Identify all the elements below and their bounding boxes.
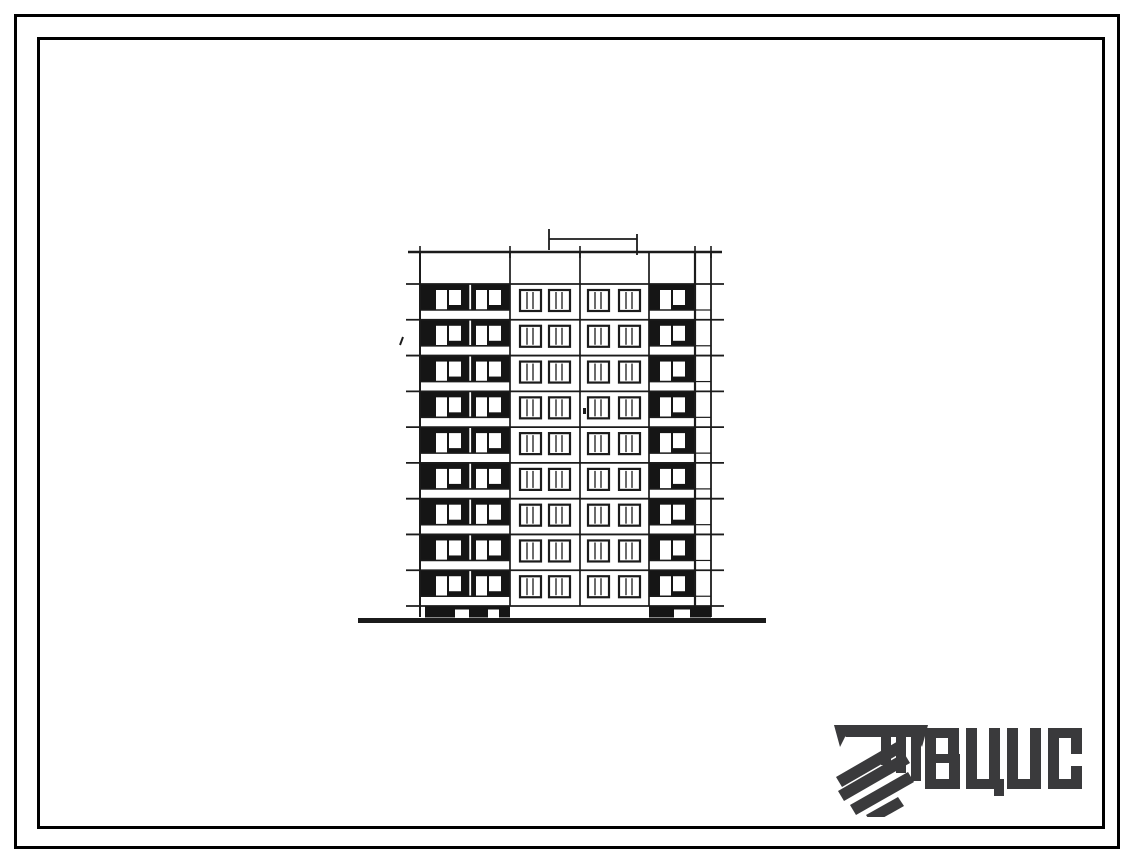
window (520, 469, 541, 490)
balcony-door-opening (476, 576, 487, 596)
window (619, 540, 640, 561)
balcony-door-opening (476, 469, 487, 489)
hatched-beam-logo-icon (833, 725, 929, 817)
right-balcony-band (650, 499, 695, 525)
window (619, 433, 640, 454)
right-balcony-band (650, 535, 695, 561)
balcony-window-opening (673, 433, 685, 448)
balcony-door-opening (660, 540, 671, 560)
balcony-divider (469, 571, 471, 597)
balcony-door-opening (660, 433, 671, 453)
balcony-window-opening (489, 469, 501, 484)
logo-letter (925, 728, 960, 789)
balcony-window-opening (673, 362, 685, 377)
balcony-door-opening (476, 326, 487, 346)
window (549, 576, 570, 597)
balcony-window-opening (449, 469, 461, 484)
logo-letter (1007, 728, 1041, 789)
window (549, 469, 570, 490)
window (520, 576, 541, 597)
balcony-window-opening (673, 326, 685, 341)
stray-mark (400, 337, 403, 345)
window (588, 576, 609, 597)
window (549, 505, 570, 526)
window (588, 397, 609, 418)
balcony-door-opening (660, 505, 671, 525)
balcony-divider (469, 499, 471, 525)
window (549, 540, 570, 561)
balcony-door-opening (476, 362, 487, 382)
right-balcony-band (650, 356, 695, 382)
window (549, 362, 570, 383)
balcony-window-opening (449, 505, 461, 520)
balcony-door-opening (660, 397, 671, 417)
window (588, 362, 609, 383)
basement-opening (455, 610, 469, 618)
window (619, 290, 640, 311)
balcony-window-opening (673, 290, 685, 305)
balcony-door-opening (476, 433, 487, 453)
balcony-window-opening (673, 397, 685, 412)
logo-letter (1048, 728, 1082, 789)
balcony-window-opening (449, 433, 461, 448)
window (588, 433, 609, 454)
balcony-door-opening (436, 433, 447, 453)
window (520, 397, 541, 418)
window (520, 362, 541, 383)
window (549, 326, 570, 347)
window (520, 326, 541, 347)
logo-letter (966, 728, 1004, 796)
window (520, 540, 541, 561)
balcony-window-opening (489, 433, 501, 448)
right-balcony-band (650, 320, 695, 346)
hanging-bar (911, 735, 921, 781)
right-balcony-band (650, 428, 695, 454)
window (619, 362, 640, 383)
balcony-door-opening (476, 540, 487, 560)
basement-opening (488, 610, 499, 618)
window (619, 469, 640, 490)
balcony-window-opening (673, 576, 685, 591)
balcony-window-opening (449, 290, 461, 305)
balcony-divider (469, 356, 471, 382)
window (588, 540, 609, 561)
balcony-door-opening (660, 290, 671, 310)
balcony-door-opening (436, 362, 447, 382)
balcony-divider (469, 392, 471, 418)
balcony-window-opening (489, 362, 501, 377)
balcony-window-opening (449, 540, 461, 555)
balcony-door-opening (660, 326, 671, 346)
balcony-door-opening (476, 290, 487, 310)
vcis-logo (833, 722, 1083, 808)
balcony-window-opening (673, 469, 685, 484)
balcony-door-opening (660, 469, 671, 489)
window (520, 290, 541, 311)
balcony-door-opening (476, 505, 487, 525)
balcony-divider (469, 285, 471, 311)
balcony-window-opening (449, 362, 461, 377)
vcis-logo-wordmark (925, 728, 1083, 800)
balcony-window-opening (449, 326, 461, 341)
balcony-window-opening (673, 505, 685, 520)
stray-mark (583, 408, 586, 414)
window (520, 433, 541, 454)
balcony-door-opening (436, 397, 447, 417)
balcony-divider (469, 428, 471, 454)
balcony-door-opening (436, 290, 447, 310)
balcony-window-opening (489, 326, 501, 341)
basement-opening (674, 610, 690, 618)
right-balcony-band (650, 285, 695, 311)
balcony-door-opening (660, 576, 671, 596)
window (588, 326, 609, 347)
balcony-window-opening (449, 576, 461, 591)
window (619, 326, 640, 347)
window (588, 290, 609, 311)
balcony-door-opening (436, 540, 447, 560)
balcony-door-opening (436, 576, 447, 596)
balcony-window-opening (489, 397, 501, 412)
right-balcony-band (650, 571, 695, 597)
balcony-door-opening (436, 469, 447, 489)
balcony-divider (469, 320, 471, 346)
balcony-window-opening (489, 576, 501, 591)
balcony-door-opening (436, 505, 447, 525)
window (549, 290, 570, 311)
balcony-window-opening (489, 290, 501, 305)
window (549, 397, 570, 418)
window (619, 505, 640, 526)
balcony-window-opening (673, 540, 685, 555)
balcony-divider (469, 535, 471, 561)
right-balcony-band (650, 392, 695, 418)
drawing-sheet (0, 0, 1133, 865)
right-balcony-band (650, 463, 695, 489)
balcony-window-opening (489, 540, 501, 555)
ground-line (358, 618, 766, 623)
balcony-door-opening (476, 397, 487, 417)
balcony-divider (469, 463, 471, 489)
window (619, 576, 640, 597)
window (520, 505, 541, 526)
window (588, 469, 609, 490)
balcony-door-opening (660, 362, 671, 382)
balcony-window-opening (449, 397, 461, 412)
window (549, 433, 570, 454)
window (588, 505, 609, 526)
window (619, 397, 640, 418)
balcony-door-opening (436, 326, 447, 346)
balcony-window-opening (489, 505, 501, 520)
